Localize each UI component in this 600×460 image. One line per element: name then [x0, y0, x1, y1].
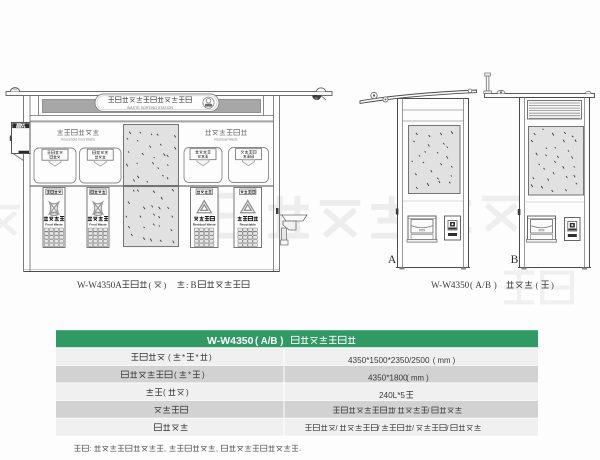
svg-text:( mm ): ( mm )	[433, 356, 456, 365]
svg-text:Food Waste: Food Waste	[45, 223, 63, 227]
svg-text:,: ,	[216, 446, 218, 453]
svg-text:): )	[186, 388, 189, 397]
svg-text:*: *	[195, 353, 198, 362]
svg-text:B: B	[511, 254, 519, 266]
svg-text:): )	[209, 353, 212, 362]
svg-text:*: *	[182, 353, 185, 362]
svg-text:WASTE SORTING STATION: WASTE SORTING STATION	[127, 106, 173, 110]
svg-text:4350*1500*2350/2500: 4350*1500*2350/2500	[348, 356, 430, 365]
svg-text:/: /	[447, 424, 449, 433]
svg-text:( A/B ): ( A/B )	[470, 280, 497, 290]
svg-text:240L*5: 240L*5	[379, 391, 405, 400]
svg-text:,: ,	[164, 446, 166, 453]
svg-text:Household food Waste: Household food Waste	[61, 138, 95, 142]
svg-text:/: /	[412, 424, 414, 433]
svg-text:(: (	[149, 280, 152, 290]
svg-text:/: /	[394, 406, 396, 415]
svg-text:(: (	[536, 280, 539, 290]
svg-text:(: (	[168, 353, 171, 362]
svg-text:W-W4350: W-W4350	[431, 280, 470, 290]
svg-text::: :	[90, 446, 92, 453]
svg-text:B: B	[191, 280, 197, 290]
svg-text:W-W4350: W-W4350	[207, 335, 254, 347]
svg-text:.: .	[299, 446, 301, 453]
svg-text:/: /	[428, 406, 430, 415]
svg-text:/: /	[336, 424, 338, 433]
svg-text:Residual Waste: Residual Waste	[214, 138, 238, 142]
svg-text:(: (	[163, 388, 166, 397]
svg-text:( mm ): ( mm )	[406, 374, 429, 383]
svg-text:): )	[551, 280, 554, 290]
svg-text:Food Waste: Food Waste	[89, 223, 107, 227]
svg-text:Recyclable: Recyclable	[240, 223, 256, 227]
svg-text:): )	[164, 280, 167, 290]
svg-text:(: (	[174, 371, 177, 380]
svg-text:4350*1800: 4350*1800	[368, 374, 408, 383]
svg-text:( A/B ): ( A/B )	[255, 336, 283, 347]
svg-text:A: A	[388, 254, 397, 266]
svg-text:*: *	[188, 371, 191, 380]
svg-text:): )	[202, 371, 205, 380]
svg-text::: :	[186, 280, 188, 290]
svg-text:W-W4350A: W-W4350A	[77, 280, 122, 290]
svg-text:Residual Waste: Residual Waste	[193, 223, 216, 227]
svg-text:/: /	[378, 424, 380, 433]
